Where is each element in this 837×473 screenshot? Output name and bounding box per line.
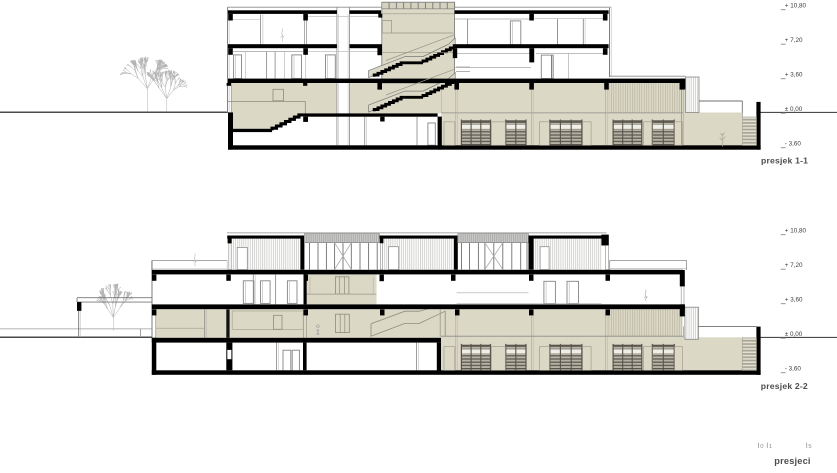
svg-text:+ 10,80: + 10,80 [785, 227, 807, 234]
svg-text:+ 3,60: + 3,60 [785, 296, 803, 303]
svg-text:± 0,00: ± 0,00 [785, 106, 803, 113]
svg-text:1: 1 [769, 444, 772, 450]
svg-text:+ 3,60: + 3,60 [785, 71, 803, 78]
svg-text:+ 10,80: + 10,80 [785, 2, 807, 9]
svg-text:presjek 1-1: presjek 1-1 [761, 155, 808, 165]
svg-text:± 0,00: ± 0,00 [785, 331, 803, 338]
svg-text:presjek 2-2: presjek 2-2 [761, 381, 808, 391]
svg-text:presjeci: presjeci [774, 456, 810, 466]
svg-text:- 3,60: - 3,60 [785, 365, 802, 372]
svg-text:- 3,60: - 3,60 [785, 140, 802, 147]
svg-text:5: 5 [808, 444, 811, 450]
svg-text:+ 7,20: + 7,20 [785, 262, 803, 269]
svg-text:+ 7,20: + 7,20 [785, 37, 803, 44]
svg-text:0: 0 [760, 444, 763, 450]
